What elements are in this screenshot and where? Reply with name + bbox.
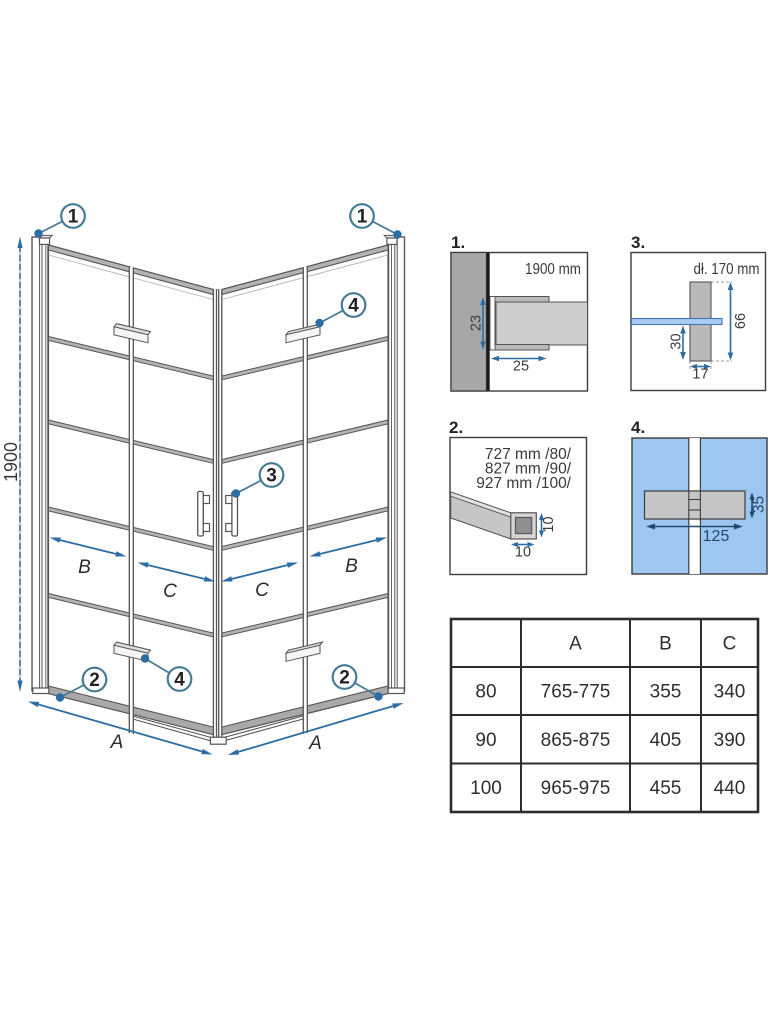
svg-text:1900 mm: 1900 mm bbox=[525, 261, 581, 278]
svg-text:3: 3 bbox=[266, 466, 277, 487]
svg-text:80: 80 bbox=[475, 682, 496, 703]
svg-text:927 mm /100/: 927 mm /100/ bbox=[476, 475, 571, 492]
svg-text:B: B bbox=[659, 634, 672, 655]
svg-text:440: 440 bbox=[714, 778, 746, 799]
svg-text:3.: 3. bbox=[631, 233, 645, 252]
svg-text:455: 455 bbox=[650, 778, 682, 799]
svg-text:405: 405 bbox=[650, 730, 682, 751]
svg-text:1.: 1. bbox=[451, 233, 465, 252]
svg-text:B: B bbox=[345, 556, 358, 577]
svg-text:30: 30 bbox=[669, 333, 685, 349]
svg-text:965-975: 965-975 bbox=[541, 778, 611, 799]
svg-text:B: B bbox=[78, 557, 91, 578]
svg-text:C: C bbox=[163, 581, 177, 602]
svg-text:4: 4 bbox=[174, 670, 185, 691]
svg-text:10: 10 bbox=[515, 545, 531, 561]
svg-text:23: 23 bbox=[469, 315, 485, 331]
svg-text:125: 125 bbox=[703, 528, 730, 545]
svg-text:A: A bbox=[308, 733, 322, 754]
svg-text:25: 25 bbox=[513, 359, 529, 375]
svg-text:1: 1 bbox=[357, 207, 368, 228]
svg-text:C: C bbox=[255, 580, 269, 601]
svg-text:35: 35 bbox=[751, 496, 768, 513]
svg-text:A: A bbox=[569, 634, 582, 655]
svg-text:390: 390 bbox=[714, 730, 746, 751]
svg-text:17: 17 bbox=[692, 367, 708, 383]
svg-text:865-875: 865-875 bbox=[541, 730, 611, 751]
svg-text:dł. 170 mm: dł. 170 mm bbox=[694, 261, 760, 278]
svg-text:1900: 1900 bbox=[1, 442, 21, 482]
svg-text:10: 10 bbox=[541, 516, 557, 532]
svg-text:100: 100 bbox=[470, 778, 502, 799]
svg-text:2: 2 bbox=[89, 670, 100, 691]
svg-text:765-775: 765-775 bbox=[541, 682, 611, 703]
svg-text:2: 2 bbox=[339, 668, 350, 689]
svg-text:1: 1 bbox=[68, 207, 79, 228]
svg-text:C: C bbox=[723, 634, 737, 655]
svg-text:90: 90 bbox=[475, 730, 496, 751]
svg-text:355: 355 bbox=[650, 682, 682, 703]
svg-text:340: 340 bbox=[714, 682, 746, 703]
svg-text:2.: 2. bbox=[449, 418, 463, 437]
svg-text:A: A bbox=[110, 732, 124, 753]
svg-text:4: 4 bbox=[348, 296, 359, 317]
svg-text:66: 66 bbox=[733, 313, 749, 329]
svg-text:4.: 4. bbox=[631, 418, 645, 437]
